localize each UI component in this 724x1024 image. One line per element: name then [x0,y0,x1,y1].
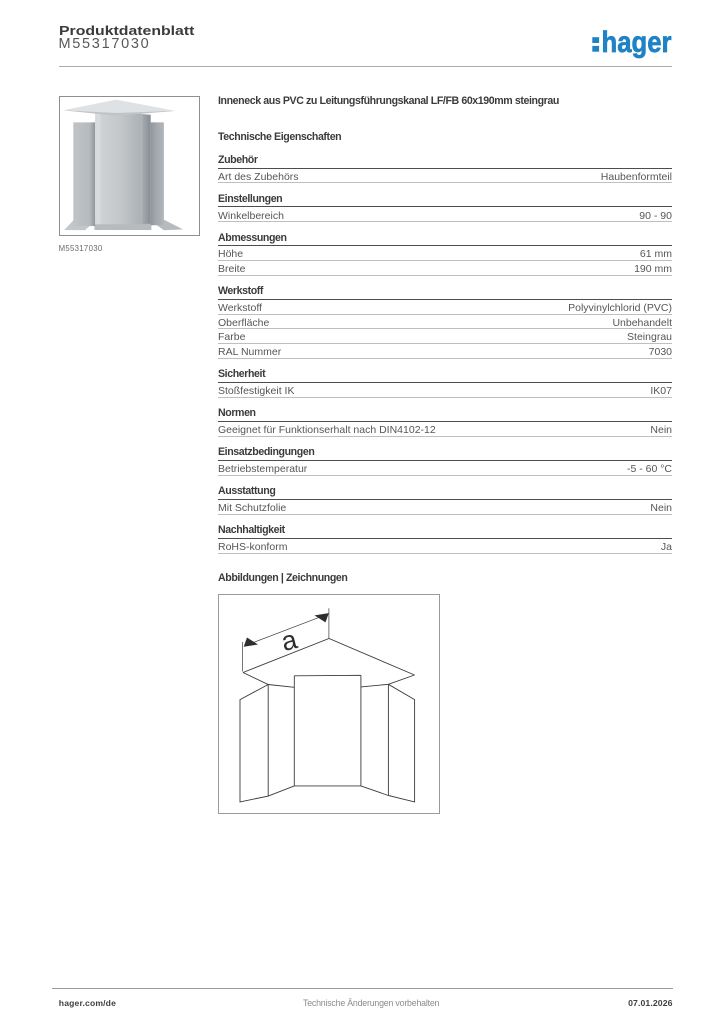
svg-text:hager: hager [602,26,672,59]
svg-text:a: a [278,624,300,657]
